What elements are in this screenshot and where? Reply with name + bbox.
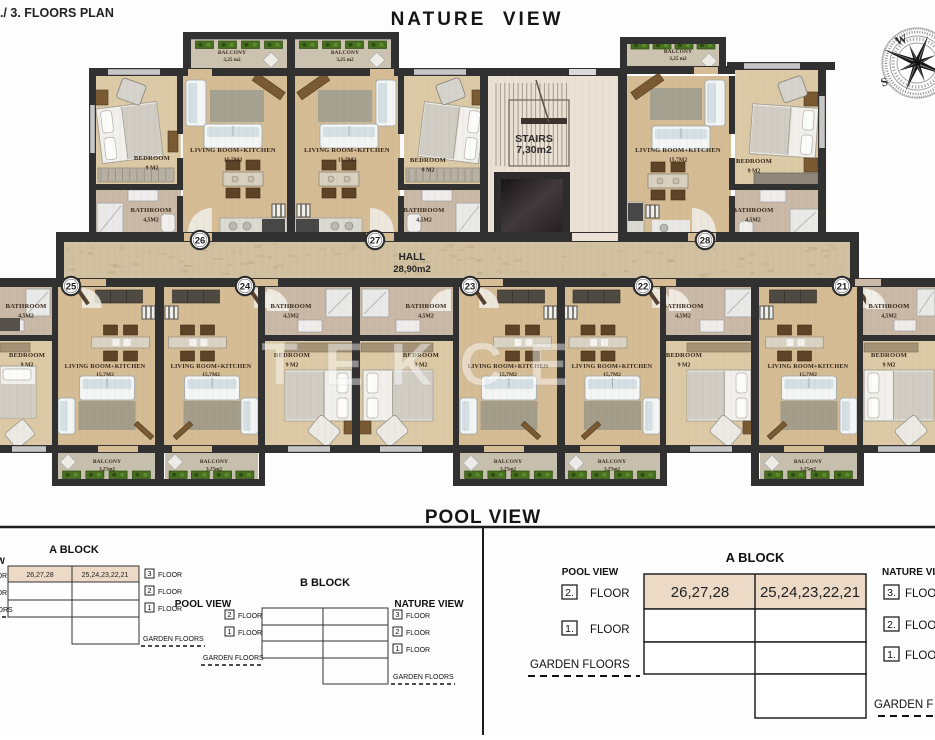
svg-text:BALCONY: BALCONY xyxy=(93,459,121,465)
svg-text:4,5M2: 4,5M2 xyxy=(416,218,432,224)
svg-text:15,7M2: 15,7M2 xyxy=(338,158,357,164)
svg-text:2: 2 xyxy=(227,610,231,619)
svg-text:BEDROOM: BEDROOM xyxy=(410,157,447,164)
svg-text:GARDEN FLOORS: GARDEN FLOORS xyxy=(143,636,204,643)
svg-text:3.: 3. xyxy=(887,587,896,599)
svg-text:3,25 m2: 3,25 m2 xyxy=(223,57,241,63)
svg-text:1.: 1. xyxy=(565,623,574,635)
svg-text:1: 1 xyxy=(147,603,151,612)
svg-text:BATHROOM: BATHROOM xyxy=(270,303,312,310)
svg-text:4,5M2: 4,5M2 xyxy=(283,314,299,320)
svg-text:26: 26 xyxy=(195,235,206,246)
svg-text:23: 23 xyxy=(465,281,476,292)
svg-text:A BLOCK: A BLOCK xyxy=(726,550,785,565)
svg-text:FLOOR: FLOOR xyxy=(0,573,7,580)
svg-text:FLOOR: FLOOR xyxy=(238,613,262,620)
svg-text:BEDROOM: BEDROOM xyxy=(666,352,703,359)
svg-text:9 M2: 9 M2 xyxy=(422,168,435,174)
svg-text:1: 1 xyxy=(227,627,231,636)
svg-text:GARDEN F: GARDEN F xyxy=(874,699,933,711)
svg-text:15,7M2: 15,7M2 xyxy=(96,372,114,378)
svg-text:4,5M2: 4,5M2 xyxy=(18,314,34,320)
svg-text:GARDEN FLOORS: GARDEN FLOORS xyxy=(0,607,13,614)
svg-text:1.: 1. xyxy=(887,649,896,661)
svg-text:15,7M2: 15,7M2 xyxy=(799,372,817,378)
svg-text:GARDEN FLOORS: GARDEN FLOORS xyxy=(203,655,264,662)
svg-text:LIVING ROOM+KITCHEN: LIVING ROOM+KITCHEN xyxy=(304,147,390,154)
svg-text:3,25m2: 3,25m2 xyxy=(206,467,222,473)
svg-text:FLOOR: FLOOR xyxy=(158,572,182,579)
svg-text:2.: 2. xyxy=(565,587,574,599)
svg-text:3: 3 xyxy=(147,569,151,578)
svg-text:21: 21 xyxy=(837,281,848,292)
svg-text:1: 1 xyxy=(395,644,399,653)
svg-text:FLOOR: FLOOR xyxy=(406,613,430,620)
svg-text:BALCONY: BALCONY xyxy=(598,459,626,465)
svg-text:4,5M2: 4,5M2 xyxy=(745,218,761,224)
svg-text:4,5M2: 4,5M2 xyxy=(881,314,897,320)
svg-text:3: 3 xyxy=(395,610,399,619)
svg-text:24: 24 xyxy=(240,281,251,292)
svg-text:2: 2 xyxy=(395,627,399,636)
svg-text:3,25m2: 3,25m2 xyxy=(604,467,620,473)
svg-text:9 M2: 9 M2 xyxy=(678,363,691,369)
svg-text:POOL VIEW: POOL VIEW xyxy=(562,567,619,578)
svg-text:FLOOR: FLOOR xyxy=(238,630,262,637)
svg-text:POOL VIEW: POOL VIEW xyxy=(0,556,5,566)
svg-text:LIVING ROOM+KITCHEN: LIVING ROOM+KITCHEN xyxy=(635,147,721,154)
svg-text:NATURE VIEW: NATURE VIEW xyxy=(391,9,564,30)
svg-text:9 M2: 9 M2 xyxy=(883,363,896,369)
svg-text:BEDROOM: BEDROOM xyxy=(871,352,908,359)
svg-text:15,7M2: 15,7M2 xyxy=(202,372,220,378)
svg-text:3,25m2: 3,25m2 xyxy=(800,467,816,473)
svg-text:3,25 m2: 3,25 m2 xyxy=(336,57,354,63)
svg-text:POOL VIEW: POOL VIEW xyxy=(175,599,232,610)
svg-text:15,7M2: 15,7M2 xyxy=(224,158,243,164)
svg-text:25,24,23,22,21: 25,24,23,22,21 xyxy=(82,572,129,579)
svg-text:FLOO: FLOO xyxy=(905,620,935,632)
svg-text:9 M2: 9 M2 xyxy=(748,169,761,175)
svg-text:BATHROOM: BATHROOM xyxy=(405,303,447,310)
svg-text:BATHROOM: BATHROOM xyxy=(868,303,910,310)
svg-text:15,7M2: 15,7M2 xyxy=(603,372,621,378)
svg-text:TEKCE: TEKCE xyxy=(261,331,594,398)
svg-text:9 M2: 9 M2 xyxy=(146,166,159,172)
svg-text:3,25m2: 3,25m2 xyxy=(99,467,115,473)
svg-text:3,25 m2: 3,25 m2 xyxy=(669,56,687,62)
svg-text:26,27,28: 26,27,28 xyxy=(671,584,729,601)
svg-text:FLOOR: FLOOR xyxy=(590,624,630,636)
svg-text:FLOOR: FLOOR xyxy=(406,630,430,637)
svg-text:4,5M2: 4,5M2 xyxy=(675,314,691,320)
svg-text:FLOO: FLOO xyxy=(905,650,935,662)
svg-text:28,90m2: 28,90m2 xyxy=(393,264,431,275)
svg-text:LIVING ROOM+KITCHEN: LIVING ROOM+KITCHEN xyxy=(768,363,849,370)
svg-text:NATURE VIEW: NATURE VIEW xyxy=(394,599,464,610)
svg-text:GARDEN FLOORS: GARDEN FLOORS xyxy=(393,674,454,681)
svg-text:GARDEN FLOORS: GARDEN FLOORS xyxy=(530,659,630,671)
svg-text:BATHROOM: BATHROOM xyxy=(5,303,47,310)
svg-text:FLOOR: FLOOR xyxy=(590,588,630,600)
svg-text:BEDROOM: BEDROOM xyxy=(9,352,46,359)
svg-text:26,27,28: 26,27,28 xyxy=(26,572,53,579)
svg-text:BALCONY: BALCONY xyxy=(794,459,822,465)
svg-text:FLOOR: FLOOR xyxy=(0,590,7,597)
svg-text:4,5M2: 4,5M2 xyxy=(143,218,159,224)
svg-text:NATURE VI: NATURE VI xyxy=(882,567,935,578)
svg-text:BATHROOM: BATHROOM xyxy=(732,207,774,214)
svg-text:4,5M2: 4,5M2 xyxy=(418,314,434,320)
svg-text:A BLOCK: A BLOCK xyxy=(49,544,99,556)
svg-text:BATHROOM: BATHROOM xyxy=(403,207,445,214)
svg-text:BALCONY: BALCONY xyxy=(664,49,692,55)
svg-text:2./ 3. FLOORS PLAN: 2./ 3. FLOORS PLAN xyxy=(0,6,114,20)
svg-text:15,7M2: 15,7M2 xyxy=(669,158,688,164)
svg-text:FLOO: FLOO xyxy=(905,588,935,600)
svg-text:BALCONY: BALCONY xyxy=(494,459,522,465)
svg-text:3,25m2: 3,25m2 xyxy=(500,467,516,473)
svg-text:FLOOR: FLOOR xyxy=(406,647,430,654)
svg-text:7,30m2: 7,30m2 xyxy=(516,144,552,156)
svg-text:BATHROOM: BATHROOM xyxy=(130,207,172,214)
svg-text:BALCONY: BALCONY xyxy=(200,459,228,465)
svg-text:25: 25 xyxy=(66,281,77,292)
svg-text:LIVING ROOM+KITCHEN: LIVING ROOM+KITCHEN xyxy=(65,363,146,370)
svg-text:B BLOCK: B BLOCK xyxy=(300,577,350,589)
svg-text:28: 28 xyxy=(700,235,711,246)
svg-text:BEDROOM: BEDROOM xyxy=(134,155,171,162)
svg-text:POOL VIEW: POOL VIEW xyxy=(425,507,541,528)
svg-text:BALCONY: BALCONY xyxy=(331,50,359,56)
svg-text:25,24,23,22,21: 25,24,23,22,21 xyxy=(760,584,860,601)
svg-text:BEDROOM: BEDROOM xyxy=(736,158,773,165)
svg-text:LIVING ROOM+KITCHEN: LIVING ROOM+KITCHEN xyxy=(190,147,276,154)
svg-text:LIVING ROOM+KITCHEN: LIVING ROOM+KITCHEN xyxy=(171,363,252,370)
svg-text:2: 2 xyxy=(147,586,151,595)
svg-text:27: 27 xyxy=(370,235,381,246)
svg-text:BATHROOM: BATHROOM xyxy=(662,303,704,310)
svg-text:2.: 2. xyxy=(887,619,896,631)
svg-text:BALCONY: BALCONY xyxy=(218,50,246,56)
svg-text:9 M2: 9 M2 xyxy=(21,363,34,369)
svg-text:HALL: HALL xyxy=(399,252,426,263)
svg-text:22: 22 xyxy=(638,281,649,292)
svg-text:FLOOR: FLOOR xyxy=(158,589,182,596)
